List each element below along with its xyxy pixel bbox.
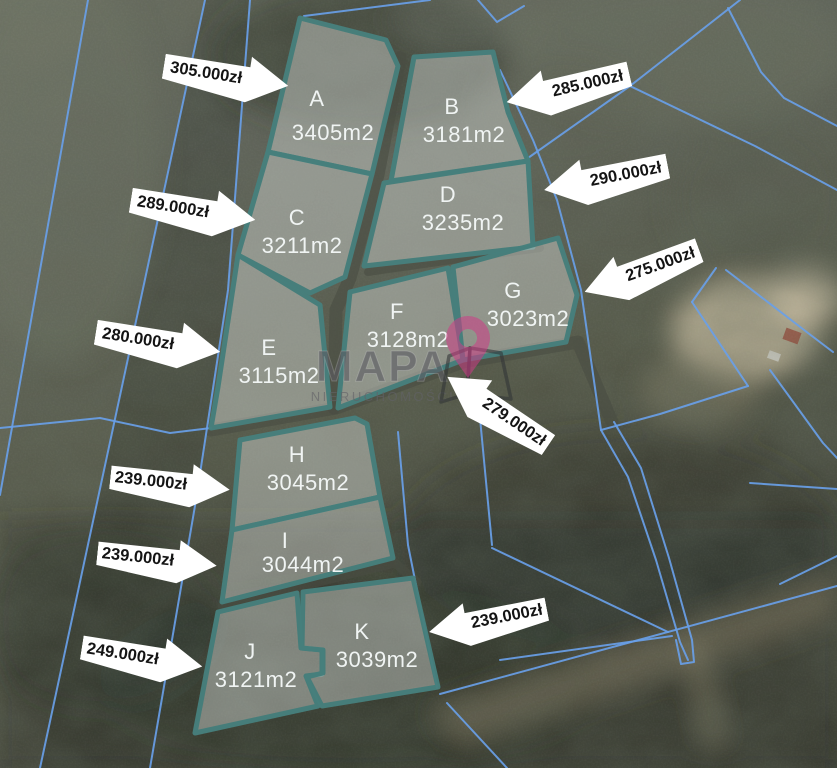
plot-K-area: 3039m2: [336, 647, 419, 672]
listing-photo: A3405m2B3181m2C3211m2D3235m2E3115m2F3128…: [0, 0, 837, 768]
plot-D-label: D: [440, 182, 456, 207]
plot-E-label: E: [261, 335, 276, 360]
plot-A-label: A: [309, 86, 324, 111]
plot-G-area: 3023m2: [487, 306, 570, 331]
plot-K-label: K: [354, 619, 369, 644]
watermark-subtitle: NIERUCHOMOŚCI: [311, 389, 455, 404]
plot-I-area: 3044m2: [262, 552, 345, 577]
plot-F-label: F: [390, 299, 404, 324]
plot-G-label: G: [504, 278, 522, 303]
plot-E-area: 3115m2: [239, 363, 320, 388]
plot-H-area: 3045m2: [267, 470, 350, 495]
plot-A-area: 3405m2: [292, 120, 375, 145]
plot-C-area: 3211m2: [262, 233, 343, 258]
watermark-title: MAPA: [316, 342, 450, 391]
plot-D-area: 3235m2: [422, 210, 505, 235]
plot-H-label: H: [289, 442, 305, 467]
plot-J-area: 3121m2: [215, 667, 298, 692]
plot-C-label: C: [289, 205, 305, 230]
plot-B-area: 3181m2: [423, 122, 506, 147]
plot-K-polygon: [302, 578, 438, 706]
plot-J-label: J: [244, 639, 256, 664]
plot-I-label: I: [282, 528, 289, 553]
plot-B-label: B: [444, 94, 459, 119]
